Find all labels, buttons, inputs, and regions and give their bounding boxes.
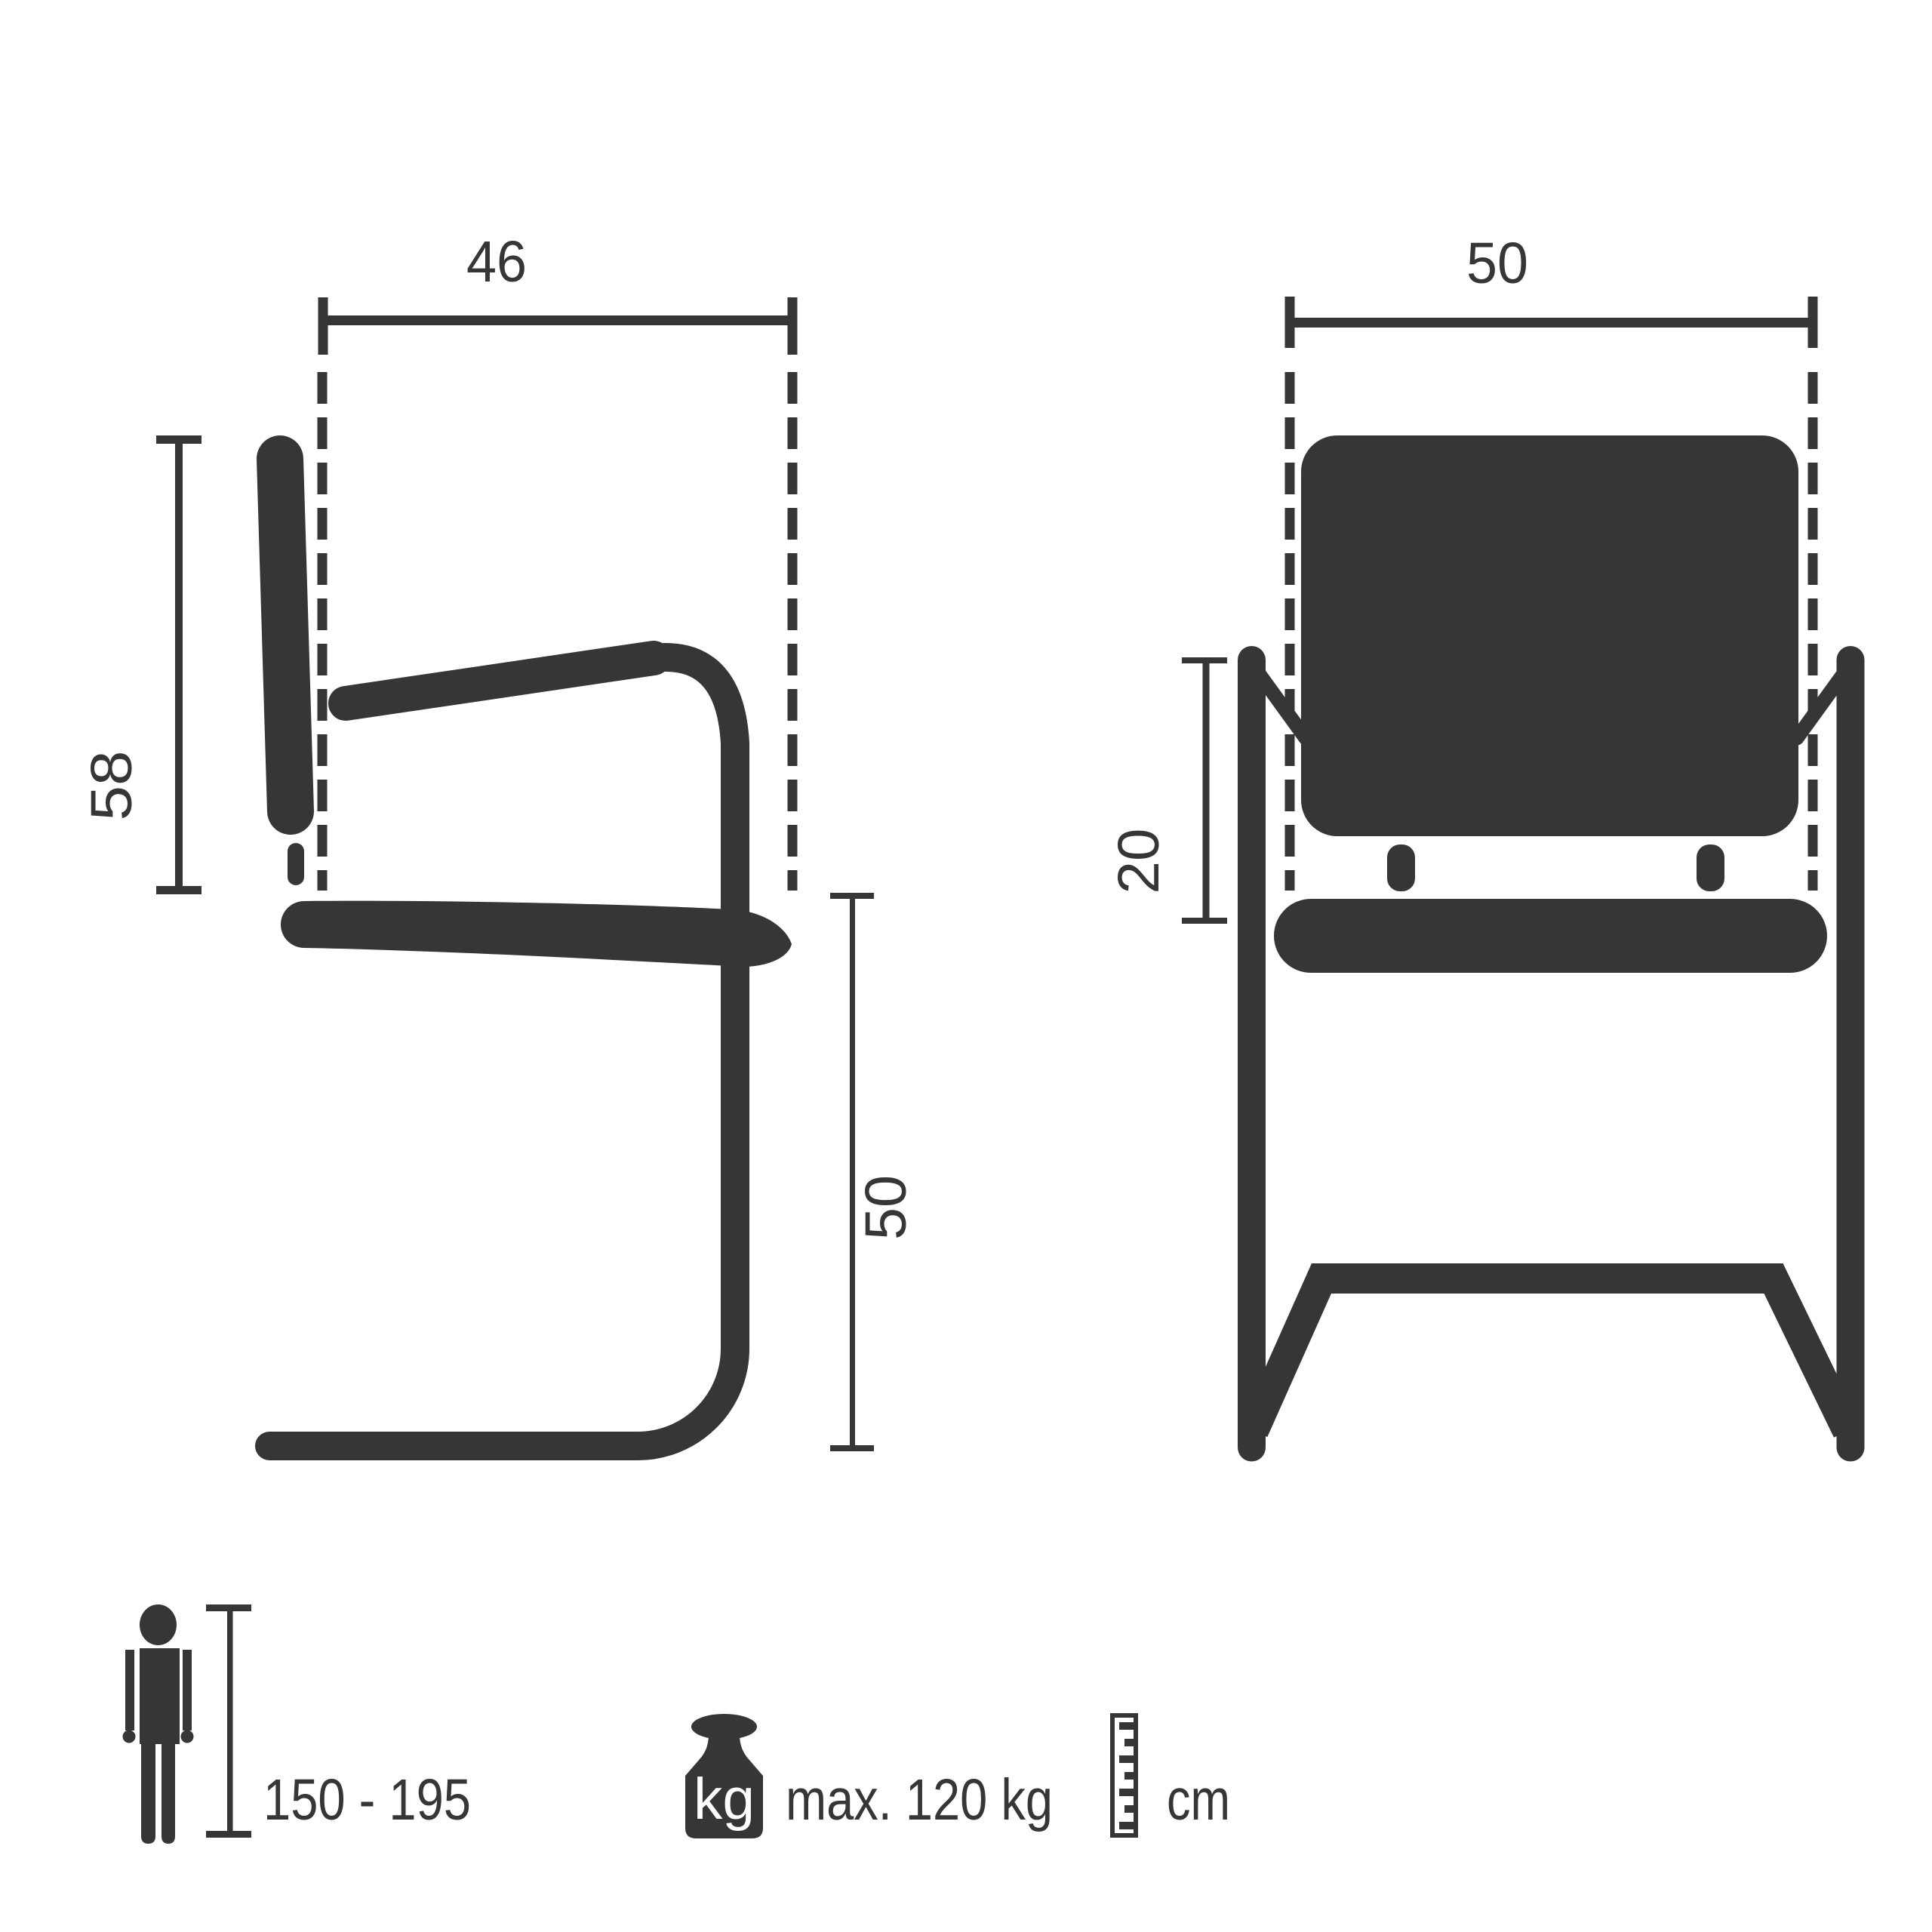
svg-text:46: 46 — [466, 229, 527, 294]
svg-text:max. 120 kg: max. 120 kg — [786, 1767, 1053, 1832]
svg-text:kg: kg — [694, 1767, 755, 1832]
svg-text:20: 20 — [1106, 829, 1171, 894]
svg-text:cm: cm — [1167, 1767, 1230, 1832]
svg-text:50: 50 — [854, 1175, 918, 1240]
svg-text:58: 58 — [79, 751, 144, 821]
svg-text:50: 50 — [1466, 231, 1528, 296]
svg-text:150 - 195: 150 - 195 — [263, 1767, 471, 1832]
